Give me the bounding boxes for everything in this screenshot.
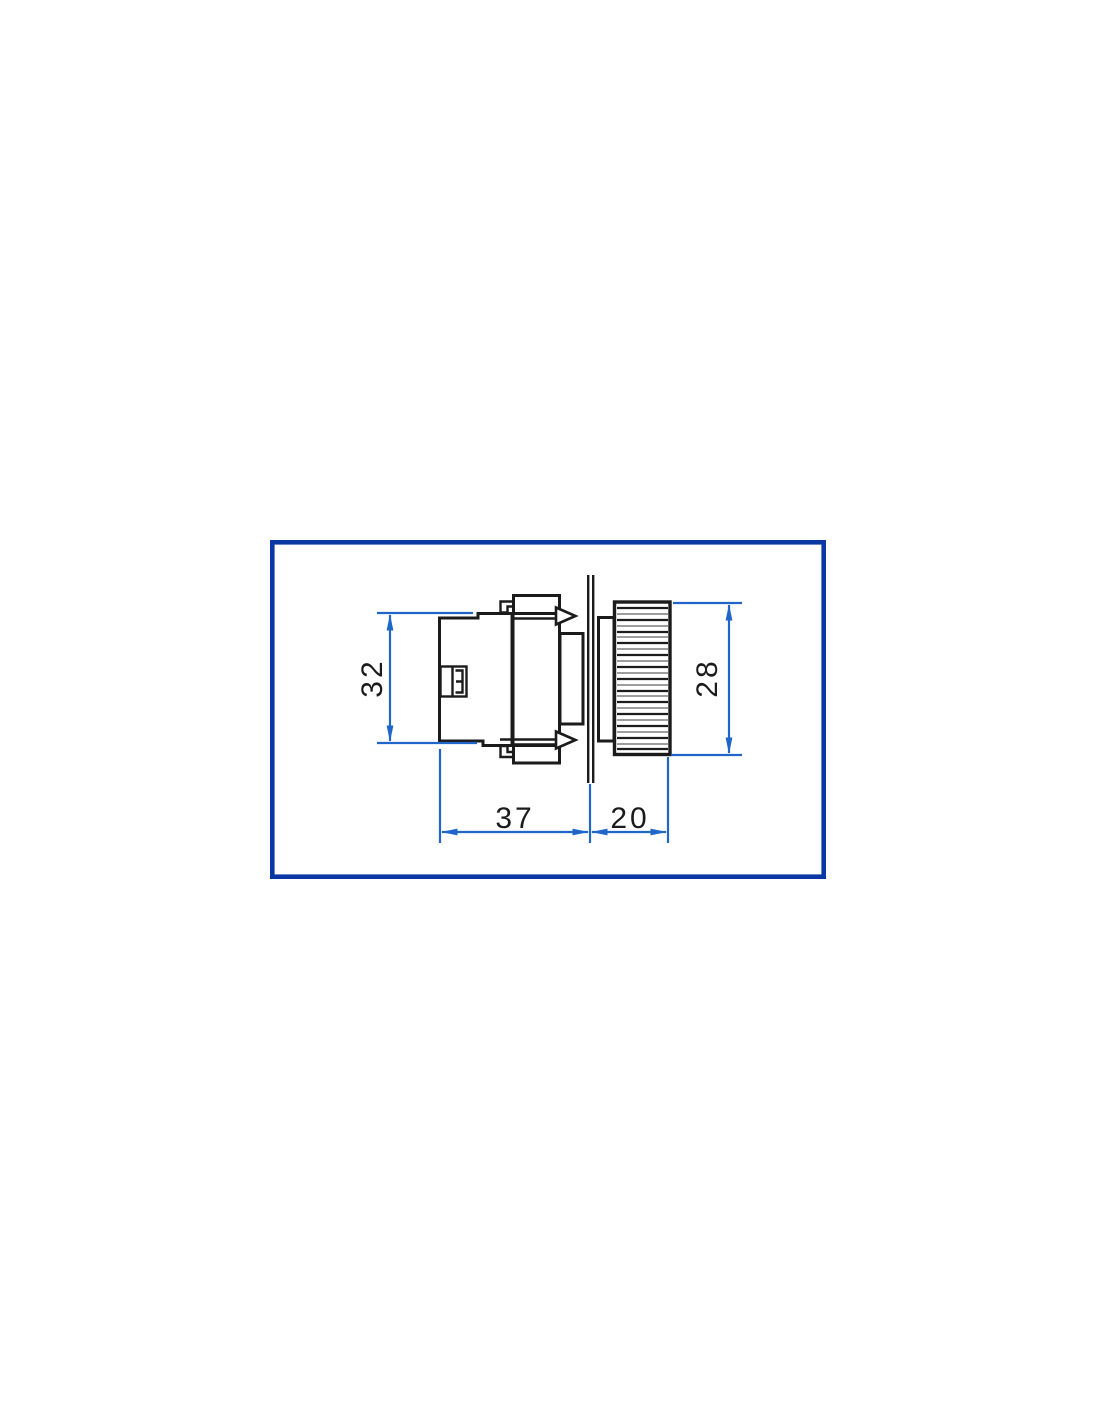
latch-spring-bottom <box>501 746 514 757</box>
flange-body <box>513 614 560 746</box>
flange-top-cap <box>514 596 560 614</box>
dimension-body-height: 32 <box>356 613 477 743</box>
latch-arrow-bottom <box>556 732 576 749</box>
button-head <box>615 602 671 755</box>
terminal-detail <box>441 667 467 697</box>
mounting-panel-lines <box>588 575 593 783</box>
drawing-frame-border <box>272 542 823 876</box>
page: 32 28 37 20 <box>0 0 1100 1422</box>
contact-block-outline <box>440 614 513 746</box>
technical-drawing: 32 28 37 20 <box>0 0 1100 1422</box>
dimension-body-depth-label: 37 <box>495 802 534 835</box>
latch-spring-top <box>501 602 514 613</box>
dimension-head-diameter: 28 <box>671 603 742 755</box>
flange-bottom-cap <box>514 746 560 764</box>
latch-clip-top <box>497 608 576 625</box>
contact-block-body <box>440 614 513 746</box>
dimension-head-depth-label: 20 <box>610 802 649 835</box>
dimension-head-depth: 20 <box>591 757 668 843</box>
mounting-flange <box>497 596 583 764</box>
dimension-head-diameter-label: 28 <box>691 658 724 697</box>
dimension-body-height-label: 32 <box>356 658 389 697</box>
knurl-lines <box>617 608 668 749</box>
latch-arrow-top <box>556 608 576 625</box>
panel-washer <box>599 618 615 742</box>
actuator-shaft <box>560 634 583 725</box>
